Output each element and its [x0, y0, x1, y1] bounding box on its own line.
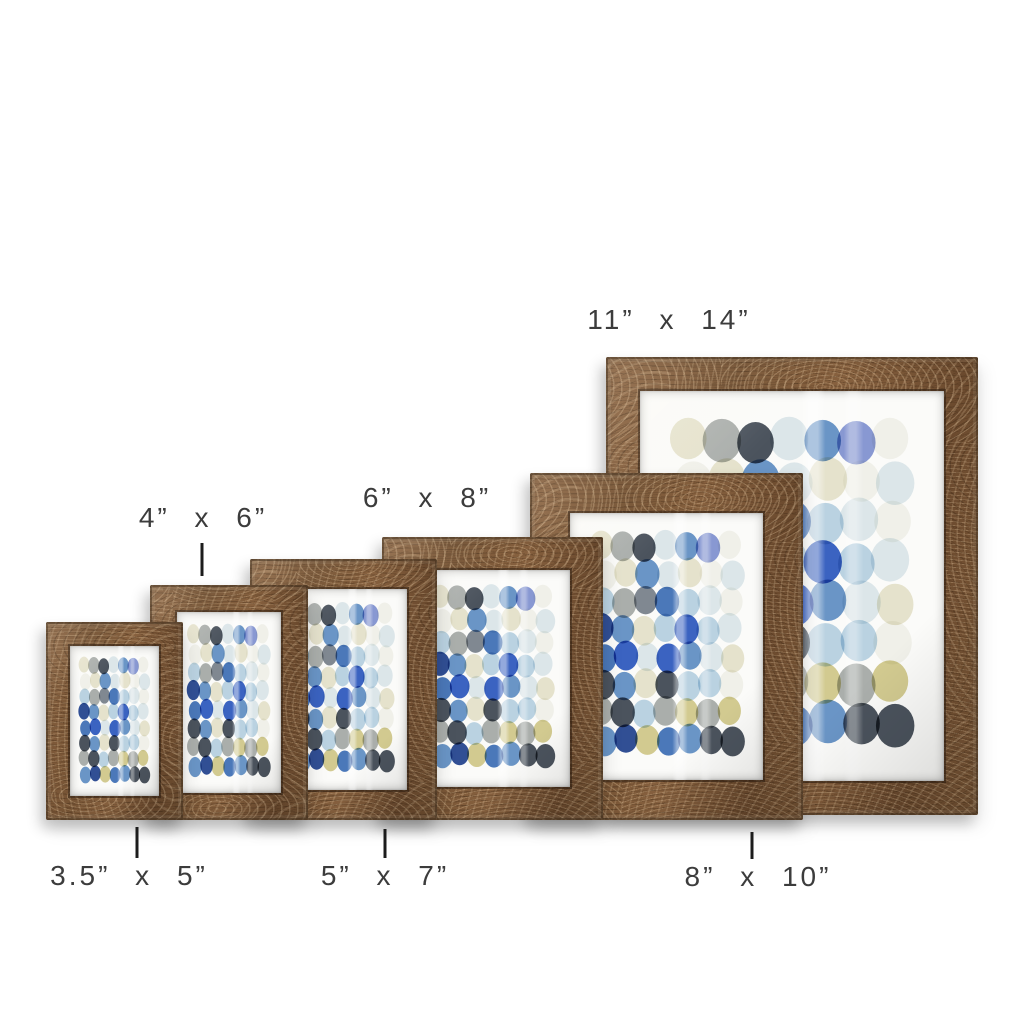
size-label-8x10: 8” x 10” [685, 861, 832, 893]
frame-matted-print [70, 646, 159, 796]
watercolor-dots-artwork [184, 621, 273, 782]
watercolor-dots-artwork [584, 526, 750, 764]
size-label-3-5x5: 3.5” x 5” [50, 860, 208, 892]
frame-matted-print [177, 612, 281, 793]
size-label-5x7: 5” x 7” [321, 860, 449, 892]
product-size-comparison-image: 3.5” x 5”5” x 7”8” x 10”4” x 6”6” x 8”11… [0, 0, 1024, 1024]
picture-frame-3-5x5 [46, 622, 183, 820]
frame-matted-print [415, 570, 570, 787]
leader-line-tick-4x6 [201, 543, 204, 576]
watercolor-dots-artwork [426, 581, 559, 774]
leader-line-tick-8x10 [751, 832, 754, 859]
size-label-11x14: 11” x 14” [587, 304, 750, 336]
size-label-4x6: 4” x 6” [139, 502, 267, 534]
leader-line-tick-5x7 [384, 829, 387, 858]
leader-line-tick-3-5x5 [136, 827, 139, 858]
watercolor-dots-artwork [76, 654, 153, 788]
size-label-6x8: 6” x 8” [363, 482, 491, 514]
